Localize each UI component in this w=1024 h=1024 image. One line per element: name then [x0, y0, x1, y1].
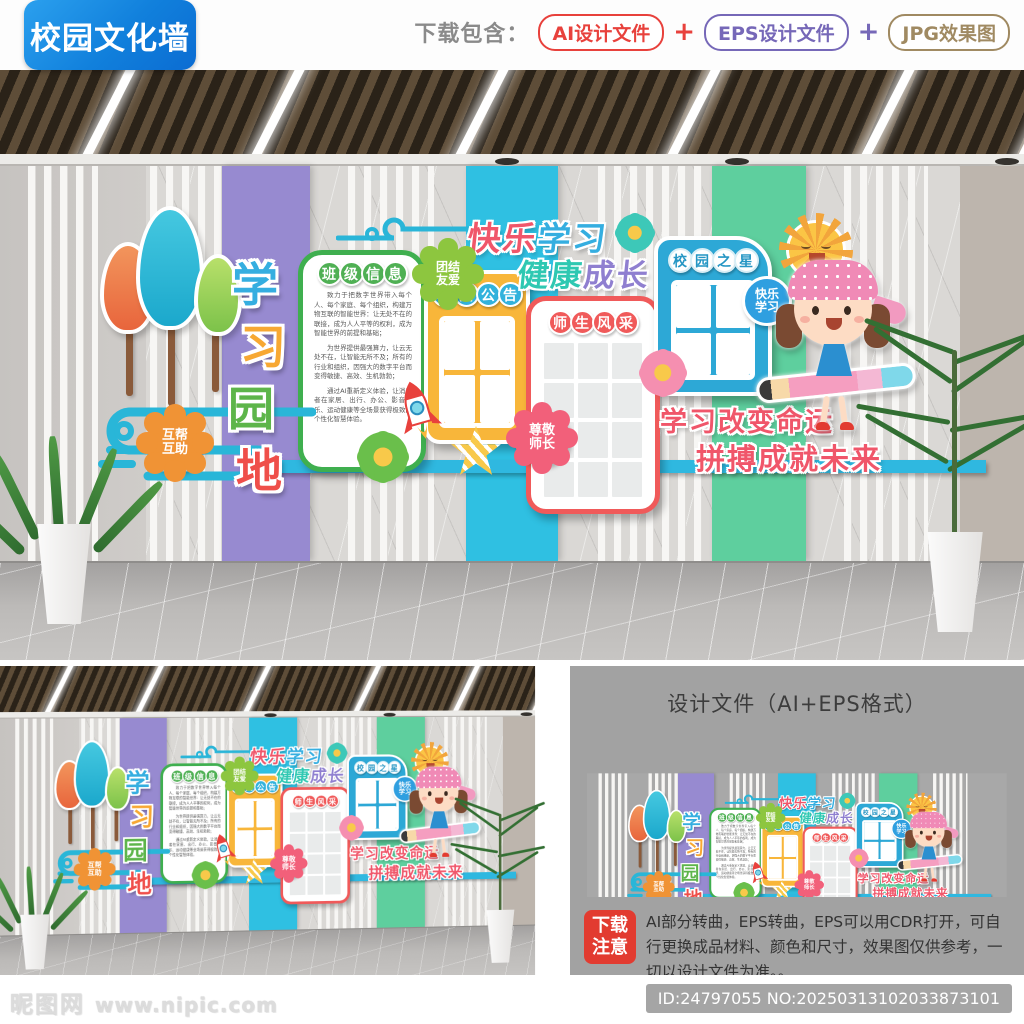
window-pane: [676, 285, 711, 328]
girl-leg: [432, 839, 437, 854]
green-flower-icon: [358, 432, 408, 482]
product-title-badge: 校园文化墙: [24, 0, 196, 70]
window-pane: [238, 801, 254, 827]
title-char: 地: [127, 867, 154, 901]
photo-placeholder: [290, 812, 306, 831]
photo-placeholder: [824, 895, 836, 897]
title-char: 师: [548, 310, 573, 335]
class-info-title: 班 级 信 息: [303, 261, 421, 286]
slogan-healthy-growth: 健康成长: [275, 762, 346, 787]
girl-eye: [933, 831, 936, 835]
plant-leaf: [0, 875, 23, 924]
sun-eye: [915, 805, 919, 807]
teachers-students-title: 师 生 风 采: [283, 794, 347, 808]
potted-plant-left: [8, 436, 128, 636]
girl-leg: [441, 839, 446, 854]
title-char: 地: [236, 440, 286, 502]
window-pane: [444, 375, 475, 424]
flat-scale-wrap: 学 习 园 地 快乐学习 健康成长 班 级 信 息 致力于把数字世界带入每个人、…: [587, 734, 1007, 896]
class-info-body: 致力于把数字世界带入每个人、每个家庭、每个组织，构建万物互联的智能世界：让无处不…: [314, 291, 412, 459]
culture-wall: 学 习 园 地 快乐学习 健康成长 班 级 信 息 致力于把数字世界带入每个人、…: [0, 166, 1024, 561]
girl-eye: [920, 831, 923, 835]
photo-placeholder: [578, 422, 608, 458]
slogan-part: 健康: [798, 811, 827, 826]
potted-palm-right: [471, 798, 535, 968]
photo-placeholder: [838, 895, 850, 897]
sun-eye: [801, 243, 811, 249]
footer-bar: 昵图网 www.nipic.com ID:24797055 NO:2025031…: [0, 975, 1024, 1024]
main-wall-render: 学 习 园 地 快乐学习 健康成长 班 级 信 息 致力于把数字世界带入每个人、…: [0, 70, 1024, 660]
title-char: 息: [205, 769, 218, 783]
photo-placeholder: [612, 422, 642, 458]
window-pane: [358, 781, 376, 804]
photo-placeholder: [544, 462, 574, 498]
blush: [800, 316, 810, 323]
wall-main-title: 学 习 园 地: [680, 809, 705, 897]
ceiling-light: [126, 666, 176, 712]
unity-badge: 团结 友爱: [422, 248, 474, 300]
respect-teachers-badge: 尊敬 师长: [514, 410, 570, 466]
badge-line: 师长: [282, 863, 296, 871]
culture-wall: 学 习 园 地 快乐学习 健康成长 班 级 信 息 致力于把数字世界带入每个人、…: [587, 773, 1007, 897]
window-pane: [769, 837, 782, 857]
title-char: 之: [712, 248, 737, 273]
title-char: 习: [129, 799, 154, 833]
plant-leaf: [26, 866, 35, 918]
palm-trunk: [499, 814, 502, 914]
sun-eye: [924, 805, 928, 807]
blush: [915, 835, 919, 838]
unity-badge: 团结 友爱: [226, 762, 253, 790]
photo-placeholder: [612, 383, 642, 419]
window-pane: [256, 830, 272, 856]
window-pane: [256, 801, 272, 827]
download-notice-row: 下载 注意 AI部分转曲，EPS转曲，EPS可以用CDR打开，可自行更换成品材料…: [584, 910, 1010, 985]
girl-eye: [812, 306, 819, 315]
girl-shoe: [442, 853, 449, 857]
badge-line: 尊敬: [529, 424, 555, 438]
slogan-part: 成长: [582, 258, 652, 294]
title-char: 信: [361, 261, 386, 286]
girl-shoe: [931, 878, 937, 881]
perspective-render-preview: 学 习 园 地 快乐学习 健康成长 班 级 信 息 致力于把数字世界带入每个人、…: [0, 666, 560, 975]
photo-placeholder: [308, 812, 324, 831]
window-pane: [784, 859, 797, 879]
blush: [854, 316, 864, 323]
teachers-students-panel: 师 生 风 采: [280, 787, 350, 905]
teachers-students-title: 师 生 风 采: [531, 310, 655, 335]
paragraph: 为世界提供最强算力，让云无处不在，让智能无所不及；所有的行业和组织，因强大的数字…: [716, 846, 756, 862]
white-pot: [17, 914, 52, 969]
sun-eye: [821, 243, 831, 249]
school-star-title: 校 园 之 星: [857, 807, 902, 817]
title-char: 星: [888, 807, 898, 817]
window-pane: [880, 842, 894, 859]
notice-window: [439, 316, 515, 428]
photo-placeholder: [612, 462, 642, 498]
palm-trunk: [952, 350, 957, 540]
title-char: 学: [232, 254, 286, 316]
slogan-healthy-growth: 健康成长: [798, 808, 854, 826]
photo-placeholder: [810, 846, 822, 861]
photo-placeholder: [612, 343, 642, 379]
window-pane: [864, 822, 878, 839]
ceiling-light: [344, 666, 393, 712]
downlight: [264, 713, 277, 717]
girl-leg: [820, 396, 830, 425]
paragraph: 致力于把数字世界带入每个人、每个家庭、每个组织，构建万物互联的智能世界：让无处不…: [169, 785, 221, 811]
badge-line: 互助: [162, 443, 188, 457]
girl-dress: [922, 846, 937, 859]
slogan-part: 健康: [275, 767, 311, 787]
downlight: [383, 713, 395, 717]
title-char: 采: [326, 794, 339, 808]
title-char: 班: [317, 261, 342, 286]
palm-frond: [951, 336, 1024, 395]
ceiling-light: [998, 70, 1024, 154]
teal-flower-icon: [840, 793, 856, 809]
girl-eye: [428, 791, 432, 796]
title-char: 园: [690, 248, 715, 273]
photo-placeholder: [325, 854, 341, 873]
notice-badge-line: 注意: [592, 937, 628, 959]
notice-window: [235, 798, 275, 859]
photo-placeholder: [838, 862, 850, 877]
title-char: 采: [614, 310, 639, 335]
photo-placeholder: [308, 876, 324, 895]
girl-shoe: [816, 422, 830, 430]
wall-main-title: 学 习 园 地: [122, 766, 154, 901]
image-id-badge: ID:24797055 NO:20250313102033873101: [646, 984, 1012, 1013]
marble-floor: [0, 561, 1024, 660]
ceiling-light: [233, 70, 327, 154]
downlight: [995, 158, 1019, 165]
girl-leg: [838, 396, 848, 425]
window-pane: [238, 830, 254, 856]
paragraph: 致力于把数字世界带入每个人、每个家庭、每个组织，构建万物互联的智能世界：让无处不…: [716, 825, 756, 844]
title-char: 学: [682, 809, 704, 834]
title-char: 息: [383, 261, 408, 286]
cloud-line-decor: [181, 744, 252, 761]
photo-placeholder: [290, 876, 306, 895]
school-star-title: 校 园 之 星: [658, 248, 768, 273]
notice-badge-line: 下载: [592, 915, 628, 937]
badge-line: 友爱: [436, 274, 460, 287]
ceiling-light: [848, 70, 942, 154]
title-char: 采: [839, 832, 849, 842]
plus-sign: +: [673, 17, 695, 47]
paragraph: 为世界提供最强算力，让云无处不在，让智能无所不及；所有的行业和组织，因强大的数字…: [314, 344, 412, 382]
girl-shoe: [430, 853, 437, 857]
download-includes-row: 下载包含： AI设计文件 + EPS设计文件 + JPG效果图: [414, 0, 1010, 64]
photo-placeholder: [824, 878, 836, 893]
download-notice-badge: 下载 注意: [584, 910, 636, 964]
ceiling-light: [237, 666, 286, 712]
window-pane: [769, 859, 782, 879]
mutual-help-badge: 互帮 互助: [146, 414, 204, 472]
class-info-title: 班 级 信 息: [163, 769, 225, 783]
teachers-students-panel: 师 生 风 采: [526, 296, 660, 514]
paragraph: 致力于把数字世界带入每个人、每个家庭、每个组织，构建万物互联的智能世界：让无处不…: [314, 291, 412, 339]
girl-eye: [844, 306, 851, 315]
photo-placeholder: [824, 846, 836, 861]
respect-teachers-badge: 尊敬 师长: [798, 873, 821, 896]
window-pane: [784, 837, 797, 857]
head-scarf: [910, 812, 947, 828]
photo-placeholder: [308, 854, 324, 873]
design-file-title: 设计文件（AI+EPS格式）: [570, 688, 1024, 718]
blush: [937, 835, 941, 838]
badge-line: 友爱: [766, 818, 776, 823]
photo-placeholder: [325, 875, 341, 894]
white-pot: [922, 532, 988, 632]
white-pot: [484, 910, 517, 964]
girl-shoe: [840, 422, 854, 430]
watermark-url: www.nipic.com: [95, 993, 278, 1017]
photo-placeholder: [544, 343, 574, 379]
downlight: [521, 712, 533, 716]
title-char: 习: [240, 316, 286, 378]
window-pane: [379, 806, 397, 829]
cloud-line-decor: [725, 793, 780, 805]
title-char: 学: [125, 766, 154, 800]
slogan-part: 成长: [826, 811, 855, 826]
design-file-section: 设计文件（AI+EPS格式）: [570, 666, 1024, 975]
title-char: 风: [592, 310, 617, 335]
title-char: 公: [476, 282, 501, 307]
top-bar: 校园文化墙 下载包含： AI设计文件 + EPS设计文件 + JPG效果图: [0, 0, 1024, 70]
title-char: 校: [668, 248, 693, 273]
culture-wall: 学 习 园 地 快乐学习 健康成长 班 级 信 息 致力于把数字世界带入每个人、…: [0, 717, 535, 936]
slogan-healthy-growth: 健康成长: [516, 250, 653, 295]
sun-eye: [422, 758, 427, 761]
badge-line: 友爱: [233, 776, 246, 783]
head-scarf: [788, 260, 878, 300]
school-star-title: 校 园 之 星: [349, 761, 406, 775]
ai-file-badge: AI设计文件: [538, 14, 664, 51]
slogan-part: 健康: [516, 258, 586, 294]
white-pot: [32, 524, 96, 624]
class-info-title: 班 级 信 息: [711, 812, 759, 822]
badge-line: 互助: [653, 887, 664, 893]
title-char: 园: [228, 378, 286, 440]
downlight: [725, 158, 749, 165]
ceiling-light: [68, 70, 162, 154]
plant-leaf: [47, 436, 64, 531]
cloud-line-decor: [336, 214, 470, 244]
girl-dress: [816, 344, 852, 376]
mutual-help-badge: 互帮 互助: [647, 875, 671, 897]
paragraph: 为世界提供最强算力，让云无处不在，让智能无所不及；所有的行业和组织，因强大的数字…: [169, 814, 221, 835]
watermark-site-name: 昵图网: [10, 992, 85, 1018]
photo-placeholder: [578, 462, 608, 498]
downlight: [495, 158, 519, 165]
badge-line: 师长: [804, 885, 815, 891]
title-char: 级: [339, 261, 364, 286]
ceiling-light: [443, 70, 537, 154]
photo-placeholder: [578, 343, 608, 379]
photo-placeholder: [838, 878, 850, 893]
eps-file-badge: EPS设计文件: [704, 14, 849, 51]
badge-line: 互帮: [162, 429, 188, 443]
window-pane: [444, 321, 475, 370]
girl-on-pencil-illustration: [768, 258, 908, 443]
teal-flower-icon: [616, 214, 654, 252]
unity-badge: 团结 友爱: [760, 807, 781, 828]
ceiling-light: [446, 666, 494, 712]
photo-placeholder: [325, 833, 341, 852]
title-char: 地: [684, 886, 705, 897]
girl-eye: [444, 791, 448, 796]
title-char: 生: [570, 310, 595, 335]
photo-placeholder: [578, 383, 608, 419]
blue-tree: [136, 206, 204, 330]
jpg-file-badge: JPG效果图: [888, 14, 1010, 51]
title-char: 园: [123, 833, 154, 867]
mini-scale-wrap: 学 习 园 地 快乐学习 健康成长 班 级 信 息 致力于把数字世界带入每个人、…: [0, 666, 535, 975]
wall-main-title: 学 习 园 地: [226, 254, 286, 502]
wood-slat-ceiling: [0, 666, 535, 712]
ceiling-light: [37, 666, 88, 712]
title-char: 星: [734, 248, 759, 273]
title-char: 星: [388, 761, 401, 774]
teal-flower-icon: [327, 743, 347, 763]
girl-dress: [430, 811, 448, 828]
pink-flower-icon: [640, 350, 686, 396]
blush: [422, 797, 427, 801]
sun-eye: [433, 758, 438, 761]
badge-line: 互助: [88, 869, 102, 877]
slogan-part: 成长: [309, 766, 345, 786]
window-pane: [480, 375, 511, 424]
title-char: 息: [744, 812, 754, 822]
head-scarf: [416, 767, 462, 789]
photo-placeholder: [824, 862, 836, 877]
girl-shoe: [922, 878, 928, 881]
class-info-body: 致力于把数字世界带入每个人、每个家庭、每个组织，构建万物互联的智能世界：让无处不…: [716, 825, 756, 894]
site-watermark: 昵图网 www.nipic.com: [10, 985, 278, 1019]
girl-on-pencil-illustration: [405, 765, 476, 864]
plus-sign: +: [858, 17, 880, 47]
wood-slat-ceiling: [0, 70, 1024, 154]
photo-placeholder: [308, 833, 324, 852]
title-char: 园: [680, 860, 704, 885]
potted-plant-left: [4, 866, 69, 975]
notice-window: [767, 835, 798, 881]
pink-flower-icon: [849, 849, 868, 868]
ceiling-light: [648, 70, 742, 154]
download-label: 下载包含：: [414, 16, 529, 48]
girl-on-pencil-illustration: [902, 811, 959, 887]
flat-design-preview: 学 习 园 地 快乐学习 健康成长 班 级 信 息 致力于把数字世界带入每个人、…: [587, 734, 1007, 897]
teachers-students-title: 师 生 风 采: [805, 832, 856, 842]
download-notice-text: AI部分转曲，EPS转曲，EPS可以用CDR打开，可自行更换成品材料、颜色和尺寸…: [646, 910, 1010, 985]
window-pane: [716, 333, 751, 376]
badge-line: 师长: [529, 438, 555, 452]
title-char: 习: [685, 835, 704, 860]
ceiling-light: [522, 666, 535, 712]
potted-palm-right: [896, 320, 1024, 640]
window-pane: [480, 321, 511, 370]
